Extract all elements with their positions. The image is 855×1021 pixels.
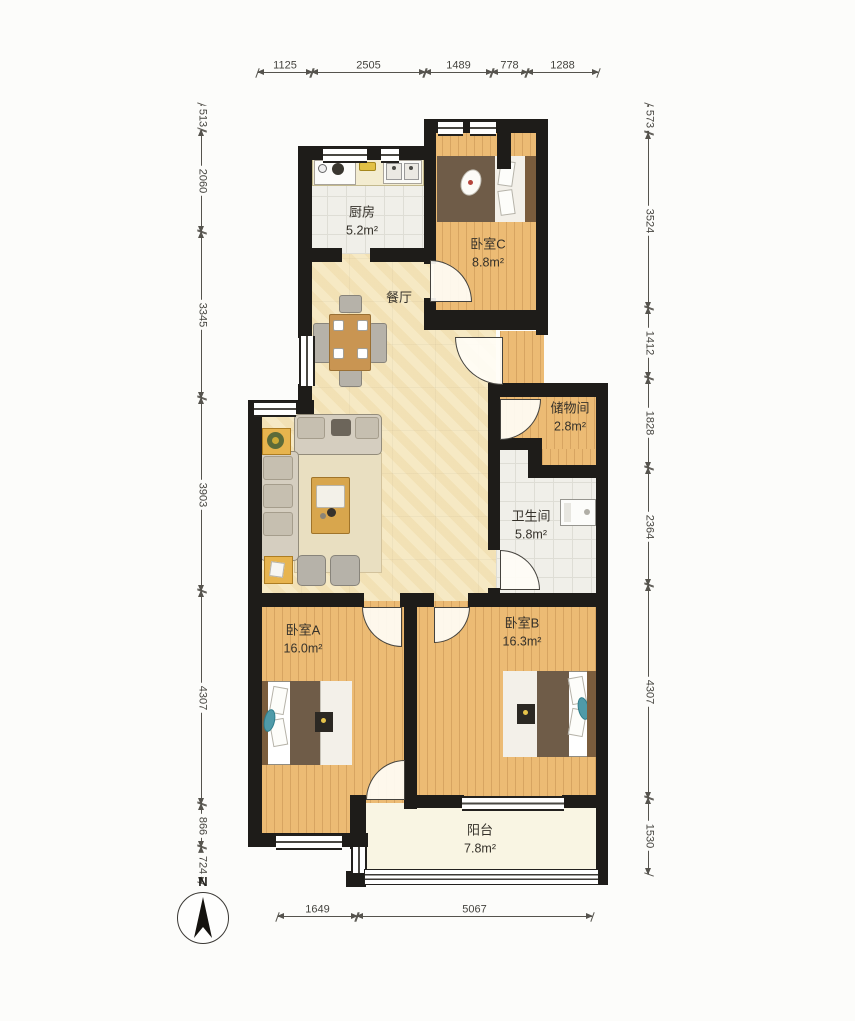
dim-top-2: 1489 bbox=[425, 72, 492, 73]
wall bbox=[248, 400, 262, 847]
dim-left-5: 866 bbox=[201, 804, 202, 847]
wall bbox=[424, 146, 436, 264]
dim-left-0: 513 bbox=[201, 105, 202, 130]
dining-chair bbox=[339, 369, 362, 387]
dim-left-3: 3903 bbox=[201, 398, 202, 591]
room-area: 16.3m² bbox=[503, 635, 542, 649]
kitchen-window bbox=[381, 147, 399, 163]
place-setting bbox=[357, 320, 368, 331]
room-area: 16.0m² bbox=[284, 642, 323, 656]
bedroom-a-window bbox=[276, 834, 342, 850]
wall bbox=[488, 383, 608, 397]
dim-left-2: 3345 bbox=[201, 232, 202, 398]
room-name: 卫生间 bbox=[511, 509, 550, 524]
living-window bbox=[254, 401, 296, 417]
wall bbox=[404, 593, 417, 809]
dining-chair bbox=[339, 295, 362, 313]
dining-chair bbox=[369, 323, 387, 363]
dim-right-5: 4307 bbox=[648, 585, 649, 798]
foyer-floor bbox=[500, 331, 544, 389]
room-area: 7.8m² bbox=[464, 842, 496, 856]
wall bbox=[404, 795, 464, 808]
sofa-cushion bbox=[355, 417, 379, 439]
room-name: 卧室A bbox=[286, 623, 321, 638]
wall bbox=[596, 593, 608, 885]
stove-burner bbox=[332, 163, 344, 175]
dim-top-0: 1125 bbox=[258, 72, 312, 73]
wall-post bbox=[346, 871, 366, 887]
sofa-cushion bbox=[263, 512, 293, 536]
north-label: N bbox=[190, 874, 216, 889]
ottoman bbox=[297, 555, 326, 586]
wall bbox=[298, 146, 312, 338]
plant-core bbox=[272, 437, 279, 444]
room-name: 卧室C bbox=[470, 237, 505, 252]
wall bbox=[350, 795, 366, 849]
compass bbox=[177, 892, 229, 944]
dim-bottom-0: 1649 bbox=[278, 916, 357, 917]
wall bbox=[536, 119, 548, 335]
bedroom-b-label: 卧室B 16.3m² bbox=[503, 615, 542, 652]
stove-dial bbox=[318, 164, 327, 173]
bedroom-c-window bbox=[438, 120, 463, 136]
dim-top-1: 2505 bbox=[312, 72, 425, 73]
dim-right-2: 1412 bbox=[648, 308, 649, 378]
bedroom-c-label: 卧室C 8.8m² bbox=[470, 236, 505, 273]
bed-b-tray-dot bbox=[523, 710, 528, 715]
sofa-pillow bbox=[331, 419, 351, 436]
dim-right-0: 573 bbox=[648, 105, 649, 133]
room-area: 2.8m² bbox=[554, 420, 586, 434]
living-window bbox=[299, 336, 315, 386]
wall bbox=[370, 248, 436, 262]
bed-a-tray-dot bbox=[321, 718, 326, 723]
ottoman bbox=[330, 555, 360, 586]
kitchen-window bbox=[323, 147, 367, 163]
place-setting bbox=[357, 348, 368, 359]
dining-label: 餐厅 bbox=[386, 289, 412, 307]
dim-left-4: 4307 bbox=[201, 591, 202, 804]
room-area: 5.8m² bbox=[515, 528, 547, 542]
bed-c-cushion-dot bbox=[468, 180, 473, 185]
washing-machine-dot bbox=[584, 509, 590, 515]
dim-right-3: 1828 bbox=[648, 378, 649, 468]
sofa-cushion bbox=[263, 484, 293, 508]
dim-left-1: 2060 bbox=[201, 130, 202, 232]
dim-top-3: 778 bbox=[492, 72, 527, 73]
balcony-rail bbox=[364, 869, 599, 885]
wall bbox=[424, 310, 548, 330]
dim-bottom-1: 5067 bbox=[357, 916, 592, 917]
sofa-cushion bbox=[297, 417, 325, 439]
kitchen-label: 厨房 5.2m² bbox=[346, 204, 378, 241]
bedroom-b-window bbox=[462, 796, 564, 811]
room-name: 储物间 bbox=[550, 401, 589, 416]
wall-step bbox=[540, 465, 608, 478]
sink-faucet bbox=[409, 166, 413, 170]
wall bbox=[488, 395, 500, 550]
dim-top-4: 1288 bbox=[527, 72, 598, 73]
dim-right-6: 1530 bbox=[648, 798, 649, 874]
dim-right-4: 2364 bbox=[648, 468, 649, 585]
north-arrow-icon bbox=[178, 893, 228, 943]
washing-machine-panel bbox=[564, 503, 571, 522]
place-setting bbox=[333, 348, 344, 359]
balcony-label: 阳台 7.8m² bbox=[464, 822, 496, 859]
room-name: 餐厅 bbox=[386, 290, 412, 305]
wall bbox=[596, 383, 608, 607]
room-area: 5.2m² bbox=[346, 224, 378, 238]
room-name: 厨房 bbox=[349, 205, 375, 220]
tray bbox=[316, 485, 345, 508]
cup bbox=[320, 513, 326, 519]
room-area: 8.8m² bbox=[472, 256, 504, 270]
room-name: 阳台 bbox=[467, 823, 493, 838]
floor-plan: 厨房 5.2m² 卧室C 8.8m² 餐厅 储物间 2.8m² 卫生间 5.8m… bbox=[0, 0, 855, 1021]
bed-b-blanket bbox=[537, 671, 569, 757]
kitchen-gadget bbox=[359, 162, 376, 171]
wall bbox=[488, 588, 500, 598]
dim-right-1: 3524 bbox=[648, 133, 649, 308]
bedroom-a-label: 卧室A 16.0m² bbox=[284, 622, 323, 659]
bathroom-label: 卫生间 5.8m² bbox=[511, 508, 550, 545]
place-setting bbox=[333, 320, 344, 331]
sofa-cushion bbox=[263, 456, 293, 480]
wall-column bbox=[497, 119, 511, 169]
wall bbox=[248, 593, 364, 607]
bedroom-c-window bbox=[470, 120, 496, 136]
storage-label: 储物间 2.8m² bbox=[550, 400, 589, 437]
book bbox=[269, 561, 285, 578]
room-name: 卧室B bbox=[505, 616, 540, 631]
kettle bbox=[327, 508, 336, 517]
sink-faucet bbox=[392, 166, 396, 170]
